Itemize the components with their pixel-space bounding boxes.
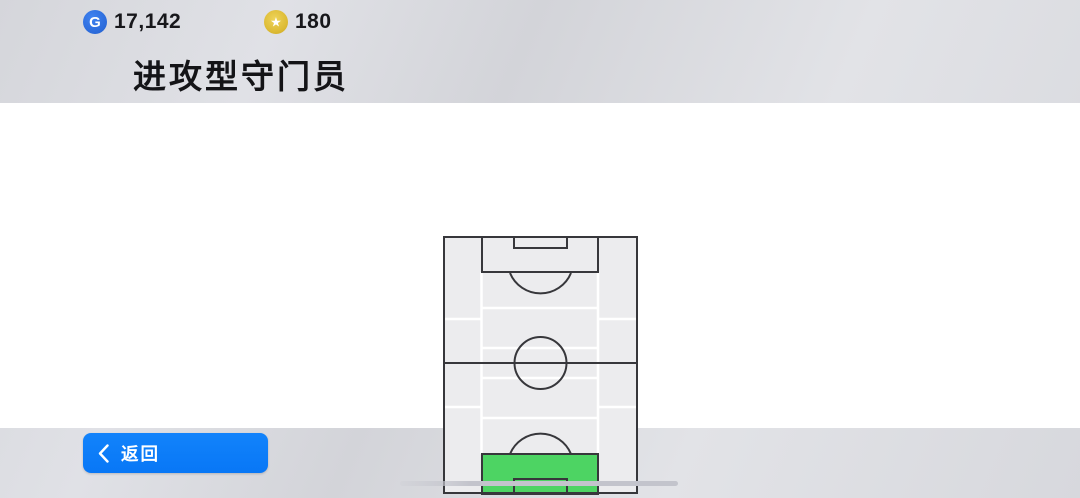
home-indicator-bar — [400, 481, 678, 486]
content-panel — [0, 103, 1080, 428]
pitch-position-map — [441, 234, 640, 496]
goalkeeper-zone-highlight — [482, 454, 598, 494]
chevron-left-icon — [98, 444, 109, 463]
back-button-label: 返回 — [121, 441, 160, 466]
coin-amount: 180 — [295, 10, 332, 34]
star-coin-icon: ★ — [264, 10, 288, 34]
g-coin-letter: G — [89, 15, 101, 30]
star-glyph: ★ — [270, 15, 282, 28]
gp-amount: 17,142 — [114, 10, 181, 34]
game-screen: G 17,142 ★ 180 进攻型守门员 — [0, 0, 1080, 498]
gp-currency-display: G 17,142 — [83, 10, 181, 34]
back-button[interactable]: 返回 — [83, 433, 268, 473]
g-coin-icon: G — [83, 10, 107, 34]
coin-currency-display: ★ 180 — [264, 10, 332, 34]
page-title: 进攻型守门员 — [133, 50, 349, 98]
